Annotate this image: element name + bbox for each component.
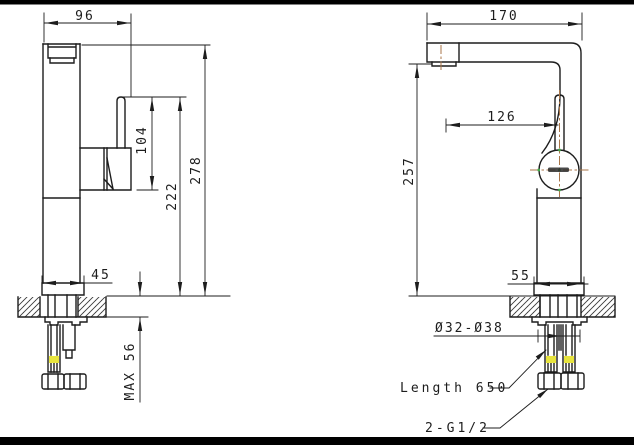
front-mounting-hardware bbox=[532, 295, 587, 389]
side-hatch-left bbox=[18, 297, 40, 317]
side-hose-highlight bbox=[49, 356, 59, 363]
dim-257-label: 257 bbox=[402, 156, 417, 185]
dim-max56-label: MAX 56 bbox=[123, 342, 138, 401]
front-hose-highlight-right bbox=[564, 356, 574, 363]
dim-170: 170 bbox=[427, 9, 582, 40]
dim-222-label: 222 bbox=[165, 181, 180, 210]
dim-96: 96 bbox=[44, 9, 131, 97]
thread-spec-label: 2-G1/2 bbox=[425, 421, 490, 436]
dim-104: 104 bbox=[135, 97, 154, 190]
technical-drawing-page: 96 104 222 278 bbox=[0, 0, 634, 445]
front-hose-highlight-left bbox=[546, 356, 556, 363]
brand-logo-mark bbox=[548, 168, 569, 173]
front-hatch-left bbox=[510, 297, 540, 317]
top-frame-bar bbox=[0, 0, 634, 5]
side-faucet-outline bbox=[42, 44, 131, 295]
dim-55: 55 bbox=[508, 269, 588, 289]
dim-96-label: 96 bbox=[75, 9, 95, 24]
callout-hole-diameter: Ø32-Ø38 bbox=[434, 321, 580, 342]
callout-hose-length: Length 650 bbox=[400, 350, 546, 396]
dim-104-label: 104 bbox=[135, 125, 150, 154]
dim-170-label: 170 bbox=[489, 9, 518, 24]
front-countertop bbox=[409, 296, 615, 317]
front-view: 170 126 257 55 Ø32-Ø38 bbox=[400, 9, 615, 436]
dim-55-label: 55 bbox=[511, 269, 531, 284]
hose-length-label: Length 650 bbox=[400, 381, 508, 396]
bottom-frame-bar bbox=[0, 437, 634, 445]
hole-diameter-label: Ø32-Ø38 bbox=[435, 321, 504, 336]
dim-126: 126 bbox=[446, 110, 558, 132]
dim-45: 45 bbox=[42, 268, 112, 287]
side-view: 96 104 222 278 bbox=[18, 9, 230, 402]
front-hatch-right bbox=[581, 297, 615, 317]
dim-max-56: MAX 56 bbox=[123, 272, 142, 402]
faucet-dimension-drawing: 96 104 222 278 bbox=[0, 0, 634, 445]
dim-126-label: 126 bbox=[487, 110, 516, 125]
dim-45-label: 45 bbox=[91, 268, 111, 283]
dim-222: 222 bbox=[165, 97, 182, 296]
dim-278-label: 278 bbox=[189, 155, 204, 184]
dim-278: 278 bbox=[189, 45, 207, 296]
side-hatch-right bbox=[78, 297, 106, 317]
dim-257: 257 bbox=[402, 64, 432, 296]
callout-thread-spec: 2-G1/2 bbox=[425, 389, 548, 436]
side-countertop bbox=[18, 297, 106, 317]
